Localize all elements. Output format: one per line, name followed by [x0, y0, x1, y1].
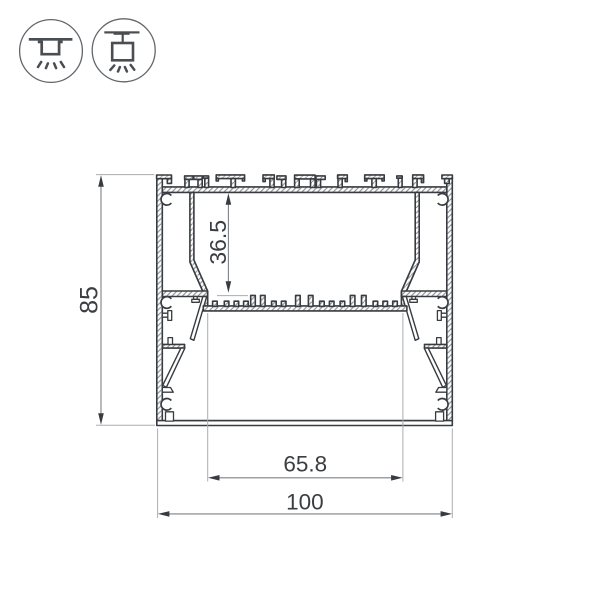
svg-text:100: 100	[286, 490, 324, 515]
svg-text:65.8: 65.8	[283, 452, 327, 477]
svg-text:36.5: 36.5	[205, 220, 231, 265]
svg-text:85: 85	[75, 286, 103, 314]
